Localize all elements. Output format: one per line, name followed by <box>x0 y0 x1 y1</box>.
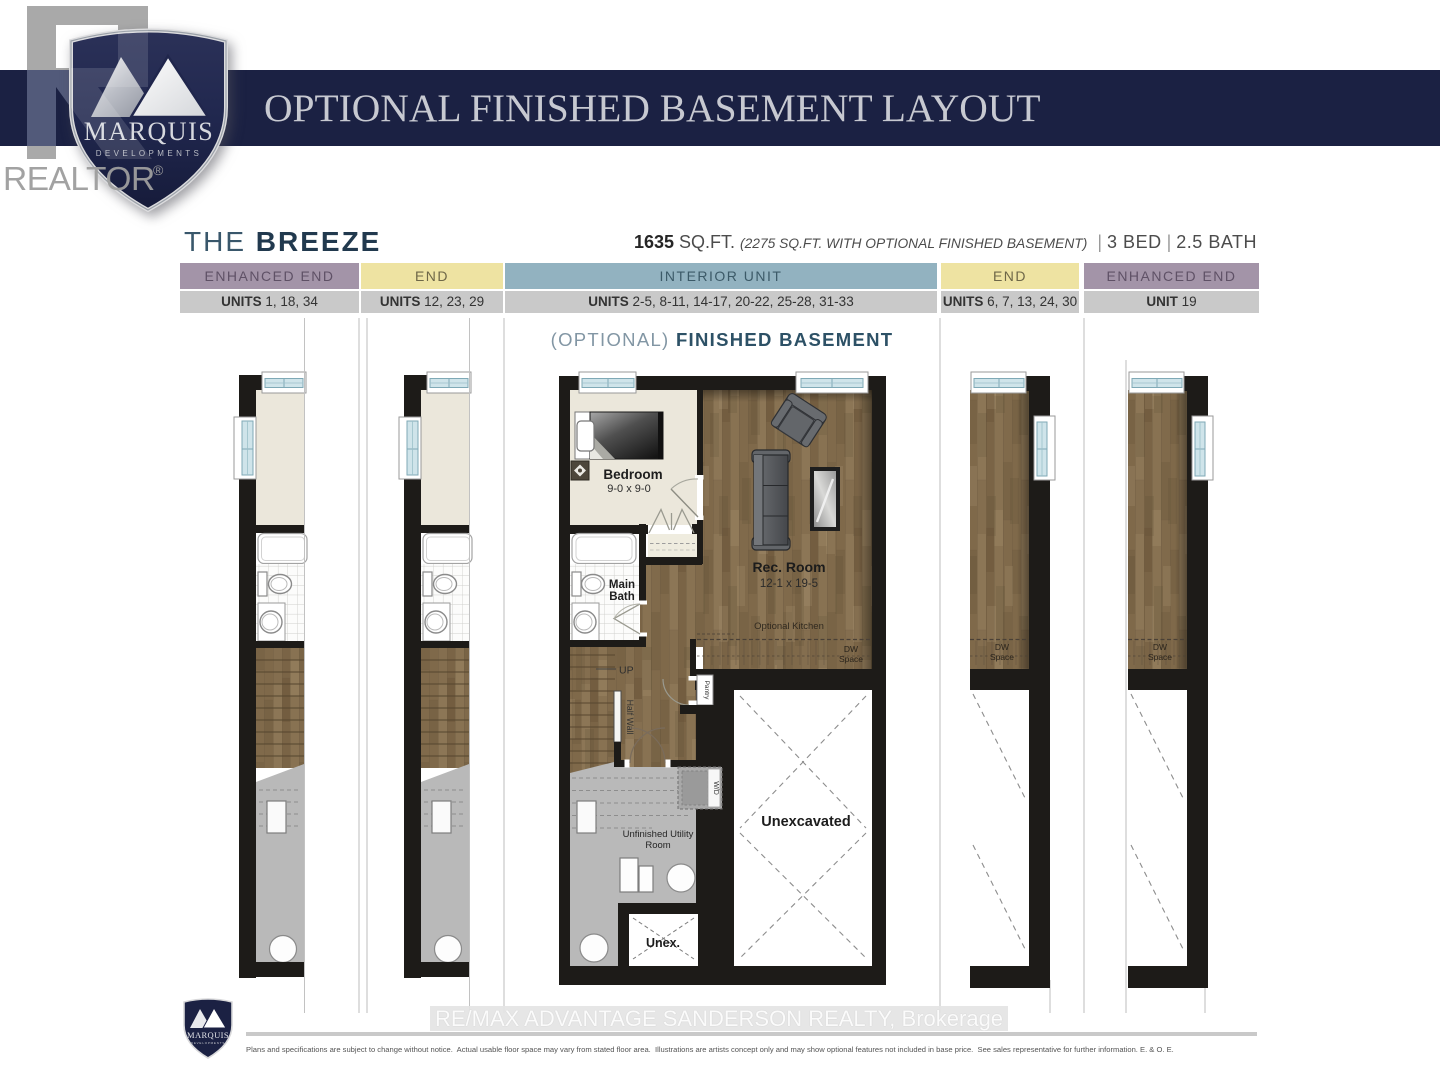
svg-text:Bath: Bath <box>609 591 635 603</box>
svg-text:REALTOR: REALTOR <box>3 161 155 198</box>
svg-text:W/D: W/D <box>712 781 719 795</box>
svg-text:Space: Space <box>839 654 863 664</box>
svg-text:Optional Kitchen: Optional Kitchen <box>754 621 824 632</box>
svg-text:DW: DW <box>995 642 1009 652</box>
svg-text:Room: Room <box>645 840 670 851</box>
svg-text:12-1 x 19-5: 12-1 x 19-5 <box>760 578 818 590</box>
svg-text:Half Wall: Half Wall <box>625 700 635 735</box>
svg-text:9-0 x 9-0: 9-0 x 9-0 <box>607 483 650 495</box>
svg-text:®: ® <box>153 162 164 178</box>
svg-text:Bedroom: Bedroom <box>603 467 662 482</box>
svg-text:Unexcavated: Unexcavated <box>761 814 850 830</box>
svg-text:UP: UP <box>619 665 634 677</box>
svg-text:Pantry: Pantry <box>703 681 710 701</box>
svg-text:MARQUIS: MARQUIS <box>187 1030 229 1040</box>
svg-text:DEVELOPMENTS: DEVELOPMENTS <box>191 1041 225 1045</box>
svg-text:Unfinished Utility: Unfinished Utility <box>623 829 694 840</box>
svg-text:Rec. Room: Rec. Room <box>752 559 825 575</box>
svg-text:Unex.: Unex. <box>646 936 680 950</box>
svg-text:Space: Space <box>990 652 1014 662</box>
svg-text:Main: Main <box>609 579 635 591</box>
svg-text:DW: DW <box>844 644 858 654</box>
